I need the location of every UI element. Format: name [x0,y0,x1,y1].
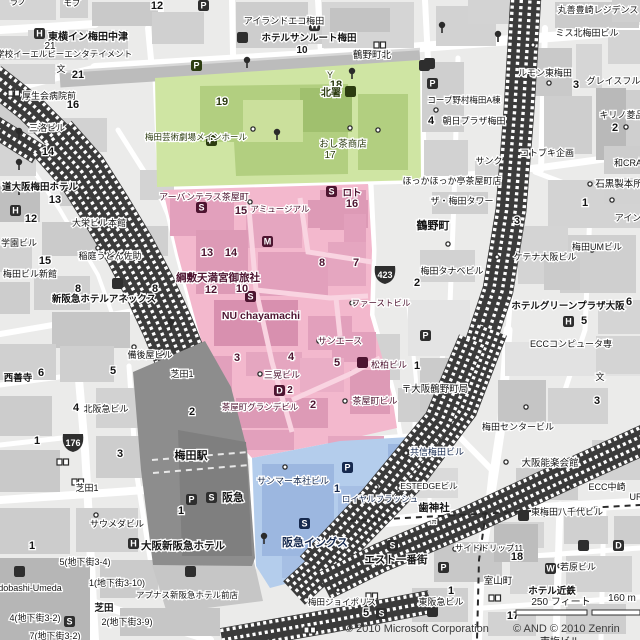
svg-text:コトブキ企画: コトブキ企画 [520,147,574,158]
svg-text:7: 7 [353,257,359,269]
svg-text:2: 2 [287,385,293,396]
svg-text:5: 5 [581,315,587,327]
svg-text:芝田1: 芝田1 [170,368,193,379]
svg-text:1(地下街3-10): 1(地下街3-10) [89,577,145,588]
svg-text:ECC中崎: ECC中崎 [588,481,625,492]
svg-text:1: 1 [29,540,35,552]
svg-text:ほっかほっか亭茶屋町店: ほっかほっか亭茶屋町店 [402,175,501,186]
svg-text:7(地下街3-2): 7(地下街3-2) [29,630,80,640]
svg-text:新阪急ホテルアネックス: 新阪急ホテルアネックス [52,293,156,305]
svg-text:阪急: 阪急 [222,490,244,504]
svg-text:12: 12 [205,284,217,296]
svg-text:NU chayamachi: NU chayamachi [222,310,300,322]
svg-text:8: 8 [152,283,158,295]
svg-text:梅田駅: 梅田駅 [175,448,208,462]
svg-text:S: S [389,541,395,551]
svg-text:ECCコンピュータ専: ECCコンピュータ専 [530,338,612,349]
svg-text:ロイヤルフラッシュ: ロイヤルフラッシュ [342,494,418,504]
svg-text:H: H [36,29,43,39]
svg-text:P: P [193,61,199,71]
svg-text:ミス北梅田ビル: ミス北梅田ビル [555,27,618,38]
svg-text:阪急イングス: 阪急イングス [282,535,348,549]
svg-text:14: 14 [225,247,238,259]
svg-text:4: 4 [288,351,295,363]
svg-text:H: H [12,206,19,216]
svg-text:大阪能楽会館: 大阪能楽会館 [521,457,578,469]
svg-text:14: 14 [42,146,55,158]
svg-text:和CRA: 和CRA [614,158,640,168]
svg-text:鶴野町: 鶴野町 [417,218,450,232]
svg-text:ホテルグリーンプラザ大阪: ホテルグリーンプラザ大阪 [511,300,625,312]
svg-text:梅田UMビル: 梅田UMビル [572,241,622,252]
svg-text:文: 文 [595,371,604,382]
svg-text:5: 5 [363,607,369,619]
svg-text:茶屋町グランデビル: 茶屋町グランデビル [222,402,299,412]
svg-text:S: S [198,203,204,213]
svg-text:UR: UR [630,492,640,502]
svg-text:アプナス新阪急ホテル前店: アプナス新阪急ホテル前店 [136,590,239,600]
svg-text:アイランドエコ梅田: アイランドエコ梅田 [244,15,325,26]
svg-text:アミュージアル: アミュージアル [250,204,310,214]
svg-text:アイン: アイン [615,213,640,223]
svg-text:梅田センタービル: 梅田センタービル [482,421,554,432]
svg-text:© 2010 Microsoft Corporation: © 2010 Microsoft Corporation [345,623,489,635]
svg-text:門学校イーエルピーエンタテイメント: 門学校イーエルピーエンタテイメント [0,49,132,59]
svg-text:芝田: 芝田 [94,602,113,614]
svg-text:S: S [247,292,253,302]
svg-text:備後屋ビル: 備後屋ビル [127,349,172,360]
svg-text:道大阪梅田ホテル: 道大阪梅田ホテル [2,181,79,193]
svg-text:5: 5 [334,357,340,369]
svg-text:梅田芸術劇場メインホール: 梅田芸術劇場メインホール [145,132,248,142]
svg-text:ホテルサンルート梅田: ホテルサンルート梅田 [261,32,356,44]
svg-text:歯神社: 歯神社 [418,501,450,514]
svg-text:東阪急ビル: 東阪急ビル [418,596,463,607]
svg-text:サンマー本社ビル: サンマー本社ビル [257,475,329,486]
svg-text:21: 21 [72,69,84,81]
svg-text:3: 3 [234,352,240,364]
svg-text:芝田1: 芝田1 [75,482,98,493]
svg-text:サンク: サンク [475,156,502,166]
svg-text:5(地下街3-4): 5(地下街3-4) [59,556,110,567]
svg-text:S: S [378,609,384,619]
svg-text:P: P [440,563,446,573]
svg-text:3: 3 [117,448,123,460]
svg-text:大阪新阪急ホテル: 大阪新阪急ホテル [141,539,225,552]
svg-text:13: 13 [201,247,213,259]
svg-text:共信梅田ビル: 共信梅田ビル [410,446,464,457]
svg-text:1: 1 [582,197,588,209]
svg-text:10: 10 [236,283,248,295]
svg-text:250 フィート: 250 フィート [531,597,590,608]
svg-text:梅田ビル新館: 梅田ビル新館 [3,268,57,279]
svg-text:S: S [328,187,334,197]
svg-text:2: 2 [612,122,618,134]
svg-text:アーバンテラス茶屋町: アーバンテラス茶屋町 [159,191,249,202]
svg-text:18: 18 [511,551,523,563]
svg-text:鶴野町北: 鶴野町北 [353,49,392,61]
svg-text:北阪急ビル: 北阪急ビル [83,403,128,414]
svg-text:8: 8 [75,283,81,295]
svg-text:5: 5 [110,365,116,377]
svg-text:8: 8 [319,257,325,269]
svg-text:4(地下街3-2): 4(地下街3-2) [9,612,60,623]
svg-text:モブ: モブ [63,0,81,8]
svg-text:4: 4 [73,402,80,414]
svg-text:P: P [422,331,428,341]
svg-text:若原ビル: 若原ビル [560,561,596,572]
svg-text:1: 1 [448,585,454,597]
svg-text:160 m: 160 m [608,593,636,604]
svg-text:ザ・梅田タワー: ザ・梅田タワー [430,195,493,206]
svg-text:三晃ビル: 三晃ビル [264,370,300,380]
svg-text:グレイスフル中: グレイスフル中 [587,75,640,86]
svg-text:西善寺: 西善寺 [4,372,33,384]
svg-text:dobashi-Umeda: dobashi-Umeda [0,583,62,593]
svg-text:S: S [66,617,72,627]
svg-text:M: M [264,237,272,247]
svg-text:S: S [208,493,214,503]
svg-text:学園ビル: 学園ビル [1,237,37,248]
svg-text:6: 6 [38,367,44,379]
svg-text:1: 1 [34,435,40,447]
svg-text:松柏ビル: 松柏ビル [371,359,407,370]
svg-text:10: 10 [296,45,308,56]
svg-text:1: 1 [414,360,420,372]
svg-text:ホテル近鉄: ホテル近鉄 [528,585,576,597]
svg-text:S: S [301,519,307,529]
svg-text:サンエース: サンエース [318,336,363,346]
svg-text:P: P [429,79,435,89]
svg-text:Y: Y [327,70,333,80]
svg-text:P: P [344,463,350,473]
svg-text:4: 4 [428,115,435,127]
svg-text:朝日プラザ梅田: 朝日プラザ梅田 [442,115,505,126]
svg-text:室山町: 室山町 [484,575,513,587]
svg-text:12: 12 [25,213,37,225]
svg-text:2: 2 [189,406,195,418]
svg-text:6: 6 [626,296,632,308]
svg-text:3: 3 [573,79,579,91]
svg-text:15: 15 [235,205,247,217]
svg-text:東梅田八千代ビル: 東梅田八千代ビル [531,506,603,517]
svg-text:大栄ビル本館: 大栄ビル本館 [72,217,126,228]
svg-text:エスト一番街: エスト一番街 [365,553,428,566]
svg-text:13: 13 [49,194,61,206]
svg-text:W: W [546,564,555,574]
svg-text:D: D [615,541,622,551]
svg-text:P: P [188,495,194,505]
svg-text:15: 15 [39,255,51,267]
svg-text:梅田タナベビル: 梅田タナベビル [420,265,483,276]
svg-text:1: 1 [178,505,184,517]
svg-text:1: 1 [334,483,340,495]
svg-text:三洛ビル: 三洛ビル [29,122,65,133]
svg-text:おし茶商店: おし茶商店 [319,138,367,150]
svg-text:キリノ菱品: キリノ菱品 [599,109,640,120]
svg-text:〒大阪鶴野町局: 〒大阪鶴野町局 [402,383,469,395]
svg-text:176: 176 [65,438,80,448]
svg-text:サウメダビル: サウメダビル [90,518,144,529]
svg-text:© AND © 2010 Zenrin: © AND © 2010 Zenrin [513,623,620,635]
svg-text:3: 3 [514,215,520,227]
svg-text:コープ野村梅田A棟: コープ野村梅田A棟 [427,95,501,105]
svg-text:北署: 北署 [321,86,341,99]
svg-text:ルモン東梅田: ルモン東梅田 [518,67,572,78]
svg-text:19: 19 [216,96,228,108]
svg-text:茶屋町ビル: 茶屋町ビル [352,395,397,406]
svg-text:ESTEDGEビル: ESTEDGEビル [400,481,458,491]
svg-text:丸善豊崎レジデンス: 丸善豊崎レジデンス [558,4,639,15]
svg-text:文: 文 [56,63,65,74]
svg-text:π: π [432,519,437,526]
svg-text:2: 2 [310,399,316,411]
svg-text:16: 16 [67,99,79,111]
svg-text:ケテナ大阪ビル: ケテナ大阪ビル [514,251,577,262]
svg-text:2: 2 [414,277,420,289]
svg-text:石黒製本所: 石黒製本所 [595,178,640,190]
svg-text:梅田ジョイポリス: 梅田ジョイポリス [308,597,376,607]
svg-text:H: H [565,317,572,327]
svg-text:ファーストビル: ファーストビル [351,298,411,308]
svg-text:12: 12 [151,0,163,12]
svg-text:16: 16 [346,198,358,210]
svg-text:稲庭うどん佐助: 稲庭うどん佐助 [78,250,141,261]
svg-text:21: 21 [44,41,56,52]
svg-text:17: 17 [324,150,336,161]
svg-text:3: 3 [594,395,600,407]
svg-text:423: 423 [377,270,392,280]
svg-text:東横イン梅田中津: 東横イン梅田中津 [48,30,128,43]
svg-text:H: H [130,539,137,549]
svg-text:ラノ: ラノ [10,0,27,7]
svg-text:2(地下街3-9): 2(地下街3-9) [101,616,152,627]
svg-text:P: P [200,1,206,11]
svg-text:D: D [276,386,283,396]
